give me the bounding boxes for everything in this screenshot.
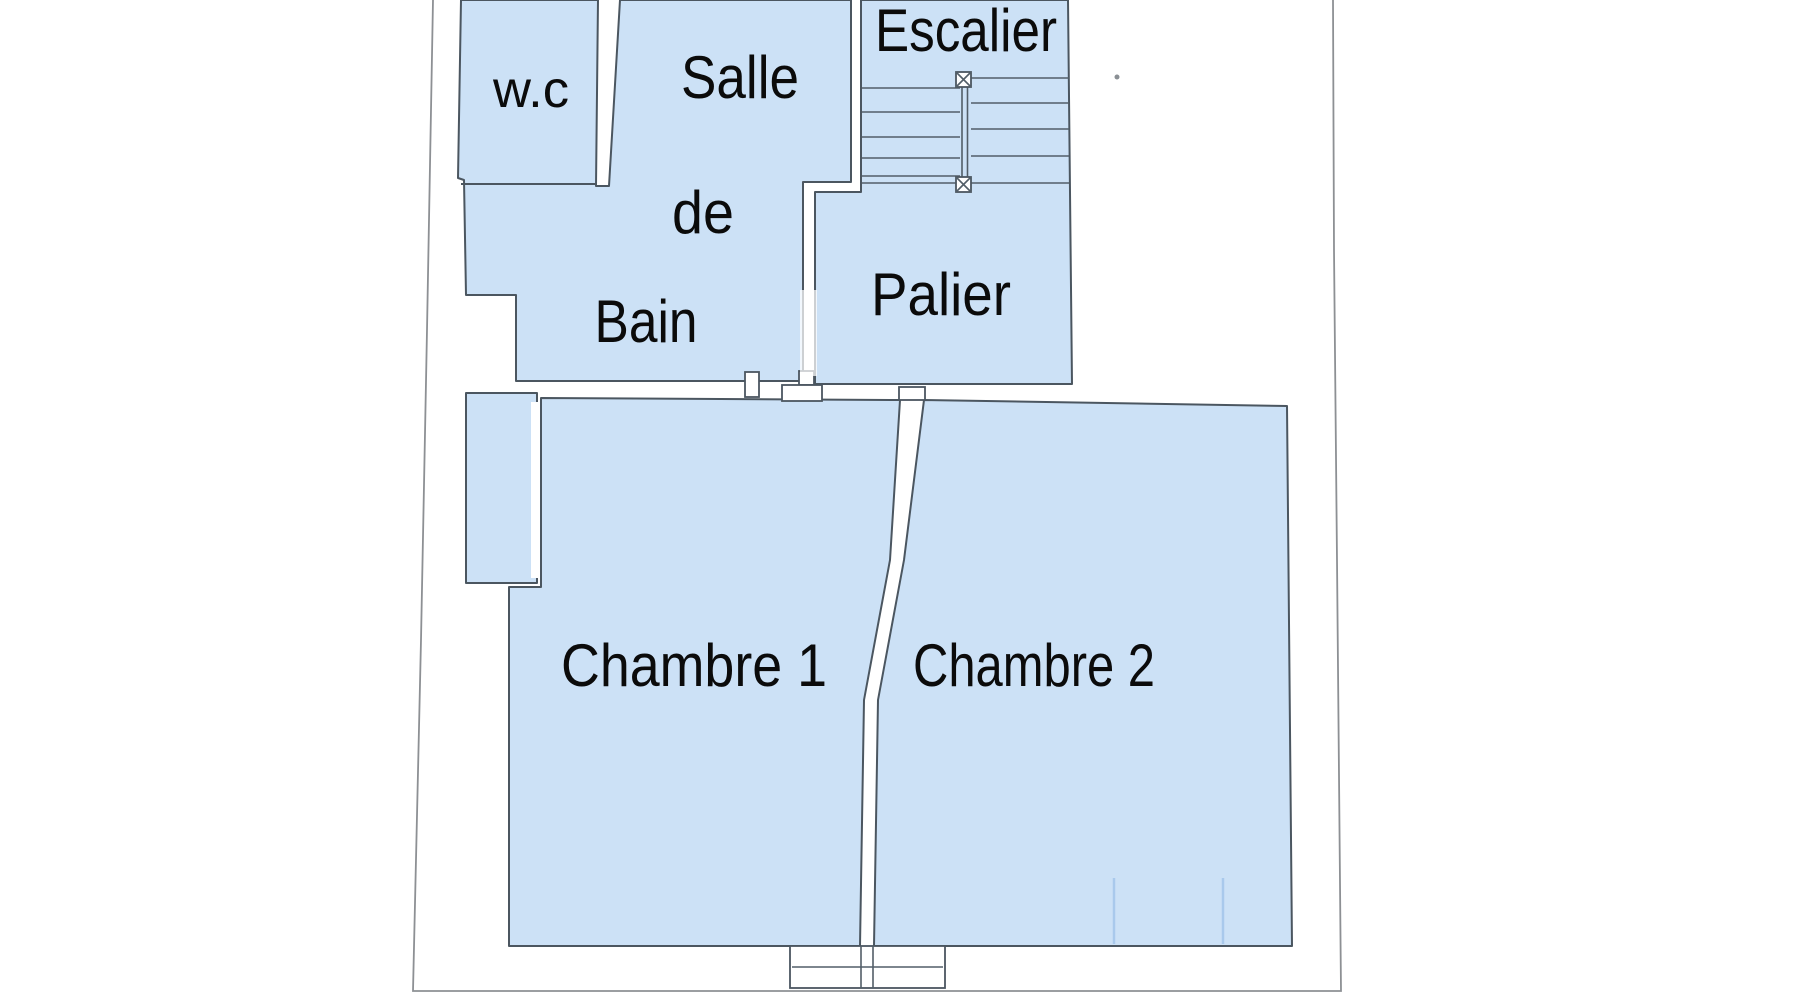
room-label-palier: Palier: [871, 261, 1011, 328]
wall-stub-palier-base: [782, 385, 822, 401]
bay-window: [466, 393, 537, 583]
floor-plan-drawing: w.c Salle de Bain Escalier Palier Chambr…: [0, 0, 1800, 1000]
room-label-de: de: [672, 179, 734, 246]
room-label-bain: Bain: [595, 288, 698, 355]
door-opening-palier-bain: [800, 290, 817, 376]
room-label-chambre-2: Chambre 2: [913, 632, 1155, 699]
room-label-escalier: Escalier: [875, 0, 1057, 64]
floor-plan-page: w.c Salle de Bain Escalier Palier Chambr…: [0, 0, 1800, 1000]
room-label-salle: Salle: [681, 44, 799, 111]
newel-post-bottom-icon: [956, 177, 971, 192]
newel-post-top-icon: [956, 72, 971, 87]
scan-speck-dot: [1115, 75, 1120, 80]
bottom-window: [790, 946, 945, 988]
room-label-wc: w.c: [492, 61, 569, 119]
wall-head-between-chambres: [899, 387, 925, 400]
room-label-chambre-1: Chambre 1: [561, 632, 827, 699]
bay-window-glass-gap: [531, 402, 541, 578]
wall-stub-bain: [745, 372, 759, 397]
